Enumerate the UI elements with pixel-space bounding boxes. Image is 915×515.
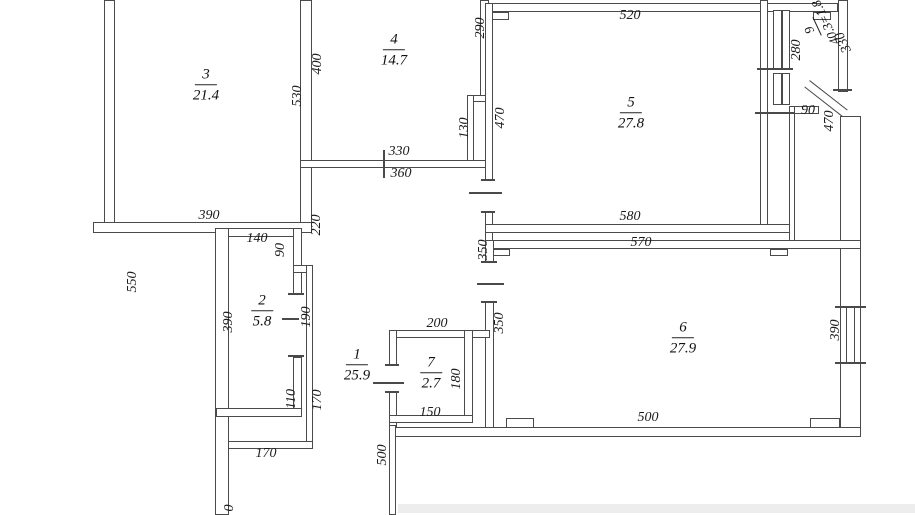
dim-room5-left: 470 <box>493 108 509 129</box>
wall-room2-right-upper <box>293 228 302 295</box>
dim-room6-left-lower: 350 <box>492 313 508 334</box>
door-stub <box>288 293 304 295</box>
door-stub <box>385 391 399 393</box>
dimension-tick <box>755 112 795 114</box>
dimension-tick <box>383 150 385 178</box>
wall-bottom-main <box>395 427 861 437</box>
room-number: 2 <box>251 292 273 311</box>
room-area: 14.7 <box>381 50 407 69</box>
dim-room5-right: 470 <box>822 111 838 132</box>
door-stub <box>481 261 497 263</box>
dim-room3-bottom: 390 <box>199 208 220 224</box>
wall-below-balcony <box>789 106 795 248</box>
room-area: 5.8 <box>253 311 272 330</box>
dim-bottom-left-cut: 0 <box>222 505 238 512</box>
dim-corridor-bottom: 500 <box>375 445 391 466</box>
wall-corridor-bottom-right <box>389 425 396 515</box>
room-number: 1 <box>346 346 368 365</box>
dim-room4-right-top: 290 <box>473 18 489 39</box>
scan-artifact <box>398 504 915 513</box>
dimension-tick <box>835 362 866 364</box>
dim-room5-bottom: 580 <box>620 209 641 225</box>
wall-room5-bottom <box>485 224 795 233</box>
dimension-tick <box>835 306 866 308</box>
room-area: 27.8 <box>618 113 644 132</box>
room-area: 25.9 <box>344 365 370 384</box>
wall-outer-right-upper <box>840 116 861 248</box>
door-stub <box>481 301 497 303</box>
door-stub <box>481 211 495 213</box>
wall-room2-left <box>215 228 229 515</box>
wall-room2-bottom <box>216 408 302 417</box>
dim-room5-top: 520 <box>620 8 641 24</box>
floor-plan: 3 21.4 4 14.7 5 27.8 6 27.9 2 5.8 1 25.9… <box>0 0 915 515</box>
room-number: 7 <box>420 354 442 373</box>
dim-room7-bottom: 150 <box>420 405 441 421</box>
wall-room6-top-notch-left <box>492 249 510 256</box>
room-number: 4 <box>383 31 405 50</box>
dimension-tick <box>469 192 502 194</box>
dim-room4-left: 400 <box>310 54 326 75</box>
room-number: 3 <box>195 66 217 85</box>
room-area: 21.4 <box>193 85 219 104</box>
door-gap-room5 <box>483 181 495 213</box>
dim-hall-top-above: 330 <box>389 144 410 160</box>
wall-room6-right-upper <box>840 248 861 307</box>
dim-room6-top: 570 <box>631 235 652 251</box>
room-7-label: 7 2.7 <box>420 354 442 392</box>
wall-room7-right <box>464 330 473 423</box>
door-stub <box>481 179 495 181</box>
dimension-tick <box>477 283 504 285</box>
dim-room3-left: 550 <box>125 272 141 293</box>
dimension-tick <box>282 318 299 320</box>
dim-hall-top-below: 360 <box>391 166 412 182</box>
wall-room6-bottom-notch-right <box>810 418 840 428</box>
room-5-label: 5 27.8 <box>618 94 644 132</box>
window-symbol-line <box>781 74 783 104</box>
room-number: 6 <box>672 319 694 338</box>
dim-room6-bottom: 500 <box>638 410 659 426</box>
dim-balcony-right: 330 <box>832 29 855 55</box>
dim-balcony-bottom: 90 <box>801 103 815 119</box>
wall-room6-top-notch-right <box>770 249 788 256</box>
room-6-label: 6 27.9 <box>670 319 696 357</box>
dim-room4-right-low: 130 <box>457 118 473 139</box>
wall-room3-right <box>300 0 312 233</box>
dim-room3-right: 530 <box>290 86 306 107</box>
wall-room2-outer-right <box>306 265 313 449</box>
door-gap-room7 <box>387 366 399 393</box>
wall-room5-top-notch-left <box>491 12 509 20</box>
dim-window-right: 280 <box>789 40 805 61</box>
wall-room3-left <box>104 0 115 233</box>
dim-room6-window: 390 <box>828 320 844 341</box>
room-number: 5 <box>620 94 642 113</box>
room-3-label: 3 21.4 <box>193 66 219 104</box>
dim-room6-left-upper: 350 <box>476 240 492 261</box>
room-area: 2.7 <box>422 373 441 392</box>
wall-room6-top <box>485 240 861 249</box>
dim-room2-left: 390 <box>221 312 237 333</box>
dim-room2-top-right: 90 <box>273 243 289 257</box>
dim-room7-right: 180 <box>449 369 465 390</box>
room-4-label: 4 14.7 <box>381 31 407 69</box>
dim-room7-top: 200 <box>427 316 448 332</box>
dim-hall-left-top: 220 <box>309 215 325 236</box>
dim-room2-outer: 170 <box>310 390 326 411</box>
dim-room2-right-lower: 110 <box>284 389 300 409</box>
dimension-tick <box>757 68 793 70</box>
door-stub <box>385 364 399 366</box>
dimension-tick <box>833 89 852 91</box>
wall-room6-bottom-notch-left <box>506 418 534 428</box>
room-area: 27.9 <box>670 338 696 357</box>
room-2-label: 2 5.8 <box>251 292 273 330</box>
wall-room6-right-lower <box>840 363 861 437</box>
room-1-label: 1 25.9 <box>344 346 370 384</box>
window-symbol-line <box>781 11 783 69</box>
dim-room2-top: 140 <box>247 231 268 247</box>
dimension-tick <box>373 382 404 384</box>
door-stub <box>288 355 304 357</box>
dim-bottom-step: 170 <box>256 446 277 462</box>
window-room6-pane <box>846 307 855 363</box>
dim-room2-door: 190 <box>299 307 315 328</box>
